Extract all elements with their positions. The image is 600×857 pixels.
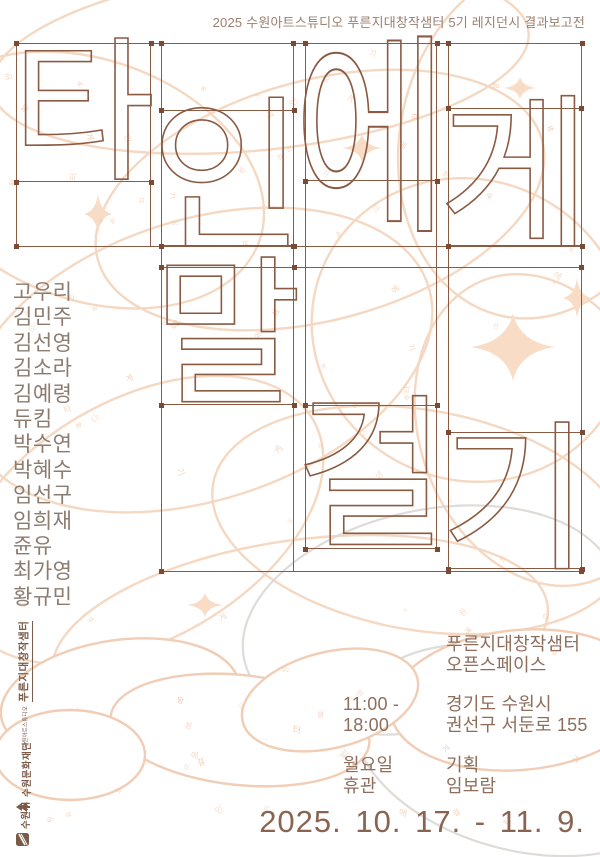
curator: 기획 임보람 xyxy=(446,755,496,796)
frame-handle xyxy=(159,403,164,408)
frame-handle xyxy=(292,108,297,113)
venue-name: 푸른지대창작샘터 오픈스페이스 xyxy=(446,634,580,675)
logo-city-label: 수원시 xyxy=(18,801,32,829)
frame-handle xyxy=(292,265,297,270)
opening-hours: 11:00 - 18:00 xyxy=(343,694,399,735)
line-handle xyxy=(446,569,451,574)
frame-handle xyxy=(303,41,308,46)
logo-city: 수원시 xyxy=(16,801,34,846)
top-note: 2025 수원아트스튜디오 푸른지대창작샘터 5기 레지던시 결과보고전 xyxy=(213,12,585,31)
artist-name: 임선구 xyxy=(13,483,72,508)
line-handle xyxy=(579,106,584,111)
line-handle xyxy=(579,265,584,270)
artist-name: 쥰유 xyxy=(13,534,72,559)
artist-name: 김예령 xyxy=(13,382,72,407)
exhibition-poster: 기터말타인원원말말게기수원게샘말수걸샘에기에인터기샘타말수타인게게타샘걸터타샘게… xyxy=(0,0,600,857)
frame-handle xyxy=(580,244,585,249)
logo-foundation-label: 수원문화재단 xyxy=(19,742,33,797)
frame-handle xyxy=(435,403,440,408)
line-handle xyxy=(159,569,164,574)
line-handle xyxy=(159,244,164,249)
frame-handle xyxy=(446,430,451,435)
grid-line xyxy=(161,571,581,572)
frame-handle xyxy=(435,179,440,184)
frame-handle xyxy=(580,41,585,46)
frame-handle xyxy=(149,180,154,185)
grid-frame-e xyxy=(305,43,437,181)
frame-handle xyxy=(292,403,297,408)
artist-name: 최가영 xyxy=(13,559,72,584)
frame-handle xyxy=(303,403,308,408)
frame-handle xyxy=(159,265,164,270)
artist-name: 김선영 xyxy=(13,331,72,356)
address: 경기도 수원시 권선구 서둔로 155 xyxy=(446,694,588,735)
line-handle xyxy=(579,569,584,574)
exhibition-dates: 2025. 10. 17. - 11. 9. xyxy=(259,804,585,840)
artist-list: 고우리 김민주 김선영 김소라 김예령 듀킴 박수연 박혜수 임선구 임희재 쥰… xyxy=(13,280,72,610)
artist-name: 김소라 xyxy=(13,356,72,381)
line-handle xyxy=(14,244,19,249)
artist-name: 김민주 xyxy=(13,305,72,330)
line-handle xyxy=(291,244,296,249)
line-handle xyxy=(446,106,451,111)
frame-handle xyxy=(149,41,154,46)
closed-notice: 월요일 휴관 xyxy=(343,755,393,796)
grid-line xyxy=(16,246,581,247)
grid-frame-ta xyxy=(16,43,151,182)
line-handle xyxy=(291,41,296,46)
frame-handle xyxy=(303,547,308,552)
artist-name: 박혜수 xyxy=(13,458,72,483)
grid-frame-geol xyxy=(305,405,437,549)
artist-name: 박수연 xyxy=(13,432,72,457)
logo-studio: 수원아트스튜디오 푸른지대창작샘터 xyxy=(16,621,33,748)
frame-handle xyxy=(159,108,164,113)
grid-frame-mal xyxy=(161,267,294,405)
grid-frame-gi xyxy=(448,432,582,569)
frame-handle xyxy=(446,244,451,249)
frame-handle xyxy=(303,179,308,184)
artist-name: 듀킴 xyxy=(13,407,72,432)
city-emblem-icon xyxy=(16,833,34,846)
frame-handle xyxy=(435,41,440,46)
artist-name: 고우리 xyxy=(13,280,72,305)
frame-handle xyxy=(580,430,585,435)
frame-handle xyxy=(14,180,19,185)
artist-name: 임희재 xyxy=(13,509,72,534)
frame-handle xyxy=(14,41,19,46)
frame-handle xyxy=(446,41,451,46)
grid-frame-ge xyxy=(448,43,582,246)
artist-name: 황규민 xyxy=(13,585,72,610)
logo-studio-label: 푸른지대창작샘터 xyxy=(16,621,33,702)
frame-handle xyxy=(435,547,440,552)
line-handle xyxy=(159,41,164,46)
grid-frame-in xyxy=(161,110,294,246)
